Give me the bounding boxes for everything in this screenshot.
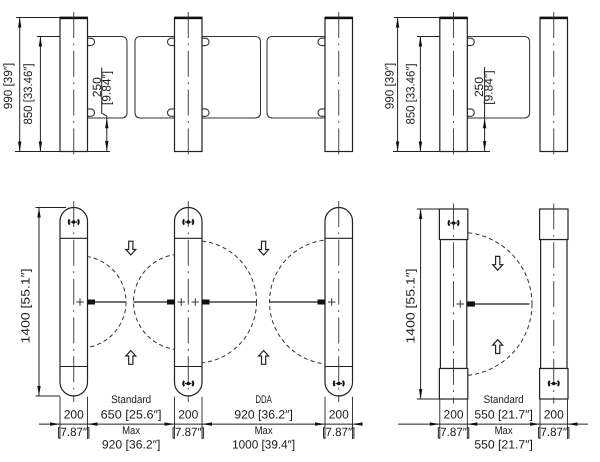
svg-text:550 [21.7″]: 550 [21.7″] [474, 438, 533, 452]
svg-text:1400 [55.1″]: 1400 [55.1″] [404, 269, 418, 344]
svg-text:[9.84″]: [9.84″] [100, 71, 114, 105]
svg-text:Max: Max [255, 425, 273, 437]
svg-text:1400 [55.1″]: 1400 [55.1″] [19, 269, 33, 344]
svg-text:920 [36.2″]: 920 [36.2″] [102, 438, 161, 452]
svg-text:Standard: Standard [484, 394, 524, 406]
svg-text:1000 [39.4″]: 1000 [39.4″] [232, 438, 295, 452]
svg-text:200: 200 [178, 407, 198, 421]
svg-text:[7.87″]: [7.87″] [537, 425, 570, 439]
svg-text:990 [39″]: 990 [39″] [1, 63, 15, 110]
svg-text:Max: Max [122, 425, 140, 437]
svg-text:Max: Max [495, 425, 513, 437]
svg-text:650 [25.6″]: 650 [25.6″] [101, 407, 162, 421]
svg-text:990 [39″]: 990 [39″] [382, 63, 396, 110]
svg-text:[7.87″]: [7.87″] [437, 425, 470, 439]
svg-text:[7.87″]: [7.87″] [172, 425, 205, 439]
svg-text:Standard: Standard [111, 394, 151, 406]
svg-text:920 [36.2″]: 920 [36.2″] [234, 407, 293, 421]
svg-text:[7.87″]: [7.87″] [57, 425, 90, 439]
svg-text:DDA: DDA [255, 394, 272, 406]
svg-text:[9.84″]: [9.84″] [482, 70, 496, 104]
svg-text:200: 200 [444, 407, 464, 421]
svg-text:850 [33.46″]: 850 [33.46″] [21, 64, 35, 125]
svg-text:[7.87″]: [7.87″] [322, 425, 355, 439]
svg-text:550 [21.7″]: 550 [21.7″] [474, 407, 533, 421]
svg-text:850 [33.46″]: 850 [33.46″] [404, 64, 418, 125]
svg-text:200: 200 [544, 407, 564, 421]
svg-text:200: 200 [329, 407, 349, 421]
svg-text:200: 200 [64, 407, 84, 421]
